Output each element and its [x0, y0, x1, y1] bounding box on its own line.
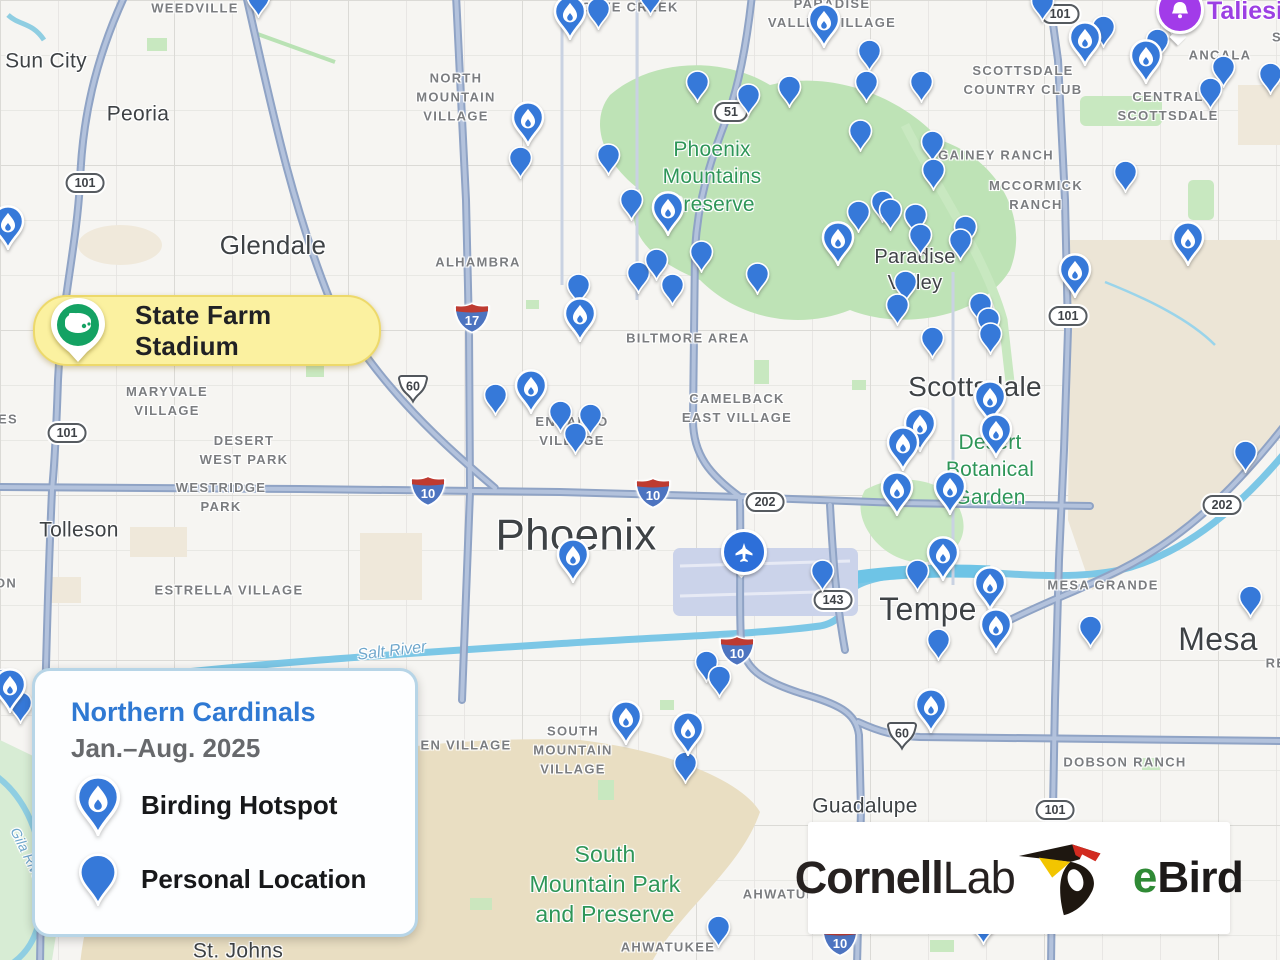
personal-location-pin[interactable]: [508, 146, 533, 179]
state-farm-stadium-callout[interactable]: State Farm Stadium: [33, 295, 381, 366]
personal-location-pin[interactable]: [978, 322, 1003, 355]
personal-location-pin[interactable]: [948, 228, 973, 261]
personal-location-pin[interactable]: [926, 628, 951, 661]
personal-location-pin[interactable]: [689, 240, 714, 273]
personal-location-pin[interactable]: [596, 143, 621, 176]
birding-hotspot-pin[interactable]: [933, 470, 967, 515]
personal-location-pin[interactable]: [745, 262, 770, 295]
airplane-icon: [721, 529, 767, 575]
legend-item-hotspot: Birding Hotspot: [63, 775, 337, 836]
birding-hotspot-pin[interactable]: [1171, 221, 1205, 266]
ebird-logo-card: CornellLab eBird: [808, 822, 1230, 934]
birding-hotspot-pin[interactable]: [886, 426, 920, 471]
personal-location-pin[interactable]: [1258, 62, 1280, 95]
personal-location-pin[interactable]: [810, 559, 835, 592]
personal-location-pin[interactable]: [885, 293, 910, 326]
taliesin-label: Taliesin: [1207, 0, 1280, 26]
legend-card: Northern Cardinals Jan.–Aug. 2025 Birdin…: [32, 668, 418, 937]
personal-location-pin[interactable]: [921, 158, 946, 191]
personal-location-pin[interactable]: [685, 70, 710, 103]
birding-hotspot-pin[interactable]: [973, 566, 1007, 611]
birding-hotspot-pin[interactable]: [553, 0, 587, 40]
birding-hotspot-pin[interactable]: [1129, 39, 1163, 84]
birding-hotspot-pin[interactable]: [880, 471, 914, 516]
birding-hotspot-pin[interactable]: [514, 369, 548, 414]
legend-subtitle: Jan.–Aug. 2025: [71, 733, 260, 764]
personal-location-pin[interactable]: [707, 665, 732, 698]
stadium-icon: [47, 295, 109, 372]
personal-location-pin[interactable]: [1078, 615, 1103, 648]
birding-hotspot-icon: [63, 775, 133, 836]
birding-hotspot-pin[interactable]: [511, 101, 545, 146]
birding-hotspot-pin[interactable]: [807, 3, 841, 48]
birding-hotspot-pin[interactable]: [1058, 253, 1092, 298]
birding-hotspot-pin[interactable]: [1068, 21, 1102, 66]
birding-hotspot-pin[interactable]: [671, 711, 705, 756]
personal-location-pin[interactable]: [878, 198, 903, 231]
woodpecker-icon: [1017, 836, 1109, 921]
personal-location-pin[interactable]: [1030, 0, 1055, 22]
stadium-label: State Farm Stadium: [135, 300, 379, 362]
ebird-e: e: [1133, 853, 1157, 903]
birding-hotspot-pin[interactable]: [609, 700, 643, 745]
personal-location-pin[interactable]: [908, 223, 933, 256]
personal-location-pin[interactable]: [660, 273, 685, 306]
birding-hotspot-pin[interactable]: [926, 536, 960, 581]
birding-hotspot-pin[interactable]: [651, 191, 685, 236]
legend-item-personal: Personal Location: [63, 853, 366, 906]
personal-location-pin[interactable]: [1198, 77, 1223, 110]
legend-item-label: Birding Hotspot: [141, 790, 337, 821]
personal-location-pin[interactable]: [483, 383, 508, 416]
personal-location-pin[interactable]: [638, 0, 663, 16]
lab-wordmark: Lab: [943, 852, 1015, 904]
personal-location-pin[interactable]: [706, 915, 731, 948]
personal-location-pin[interactable]: [1113, 160, 1138, 193]
legend-title: Northern Cardinals: [71, 697, 316, 728]
personal-location-pin[interactable]: [563, 422, 588, 455]
personal-location-pin[interactable]: [857, 39, 882, 72]
personal-location-pin[interactable]: [848, 119, 873, 152]
airport-marker[interactable]: [719, 529, 765, 583]
personal-location-icon: [63, 853, 133, 906]
legend-item-label: Personal Location: [141, 864, 366, 895]
personal-location-pin[interactable]: [586, 0, 611, 30]
personal-location-pin[interactable]: [777, 75, 802, 108]
birding-hotspot-pin[interactable]: [563, 297, 597, 342]
personal-location-pin[interactable]: [619, 188, 644, 221]
birding-hotspot-pin[interactable]: [821, 221, 855, 266]
personal-location-pin[interactable]: [920, 326, 945, 359]
personal-location-pin[interactable]: [736, 83, 761, 116]
map[interactable]: Sun CityPeoriaGlendaleTollesonPhoenixSco…: [0, 0, 1280, 960]
cornell-wordmark: Cornell: [795, 852, 943, 904]
personal-location-pin[interactable]: [909, 70, 934, 103]
birding-hotspot-pin[interactable]: [979, 413, 1013, 458]
birding-hotspot-pin[interactable]: [979, 608, 1013, 653]
ebird-wordmark: Bird: [1157, 853, 1243, 903]
personal-location-pin[interactable]: [246, 0, 271, 18]
birding-hotspot-pin[interactable]: [0, 205, 25, 250]
birding-hotspot-pin[interactable]: [0, 668, 27, 713]
personal-location-pin[interactable]: [854, 70, 879, 103]
personal-location-pin[interactable]: [1233, 440, 1258, 473]
birding-hotspot-pin[interactable]: [556, 538, 590, 583]
personal-location-pin[interactable]: [1238, 585, 1263, 618]
birding-hotspot-pin[interactable]: [914, 688, 948, 733]
